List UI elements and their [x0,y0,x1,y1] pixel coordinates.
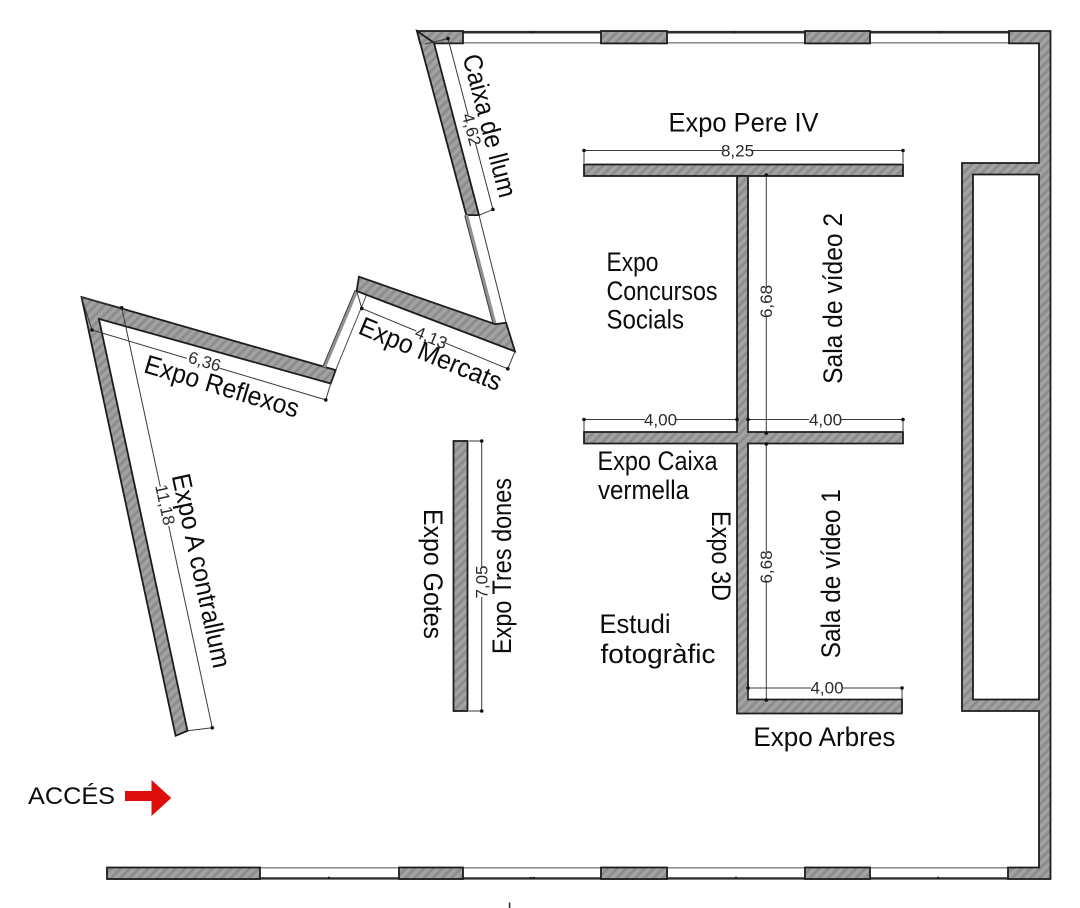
svg-text:Sala de vídeo 2: Sala de vídeo 2 [818,213,848,384]
svg-text:vermella: vermella [598,475,689,505]
svg-text:fotogràfic: fotogràfic [601,639,716,669]
svg-text:Expo: Expo [607,247,659,277]
svg-text:Expo Tres dones: Expo Tres dones [487,478,517,654]
svg-text:Sala de vídeo 1: Sala de vídeo 1 [816,489,846,658]
svg-text:8,25: 8,25 [721,142,754,161]
svg-text:6,68: 6,68 [757,285,776,318]
svg-text:4,00: 4,00 [809,411,842,430]
svg-text:Expo Pere IV: Expo Pere IV [669,108,819,138]
svg-text:Estudi: Estudi [600,609,671,639]
svg-text:4,00: 4,00 [810,679,843,698]
svg-text:Expo 3D: Expo 3D [706,511,736,601]
svg-text:Expo Arbres: Expo Arbres [753,722,895,752]
svg-text:Concursos: Concursos [607,276,718,306]
svg-text:ACCÉS: ACCÉS [28,783,115,810]
svg-text:4,00: 4,00 [644,411,677,430]
svg-text:6,68: 6,68 [757,550,776,583]
svg-text:Socials: Socials [607,305,685,335]
svg-text:Expo Caixa: Expo Caixa [598,446,718,476]
svg-text:Expo Gotes: Expo Gotes [418,509,448,639]
